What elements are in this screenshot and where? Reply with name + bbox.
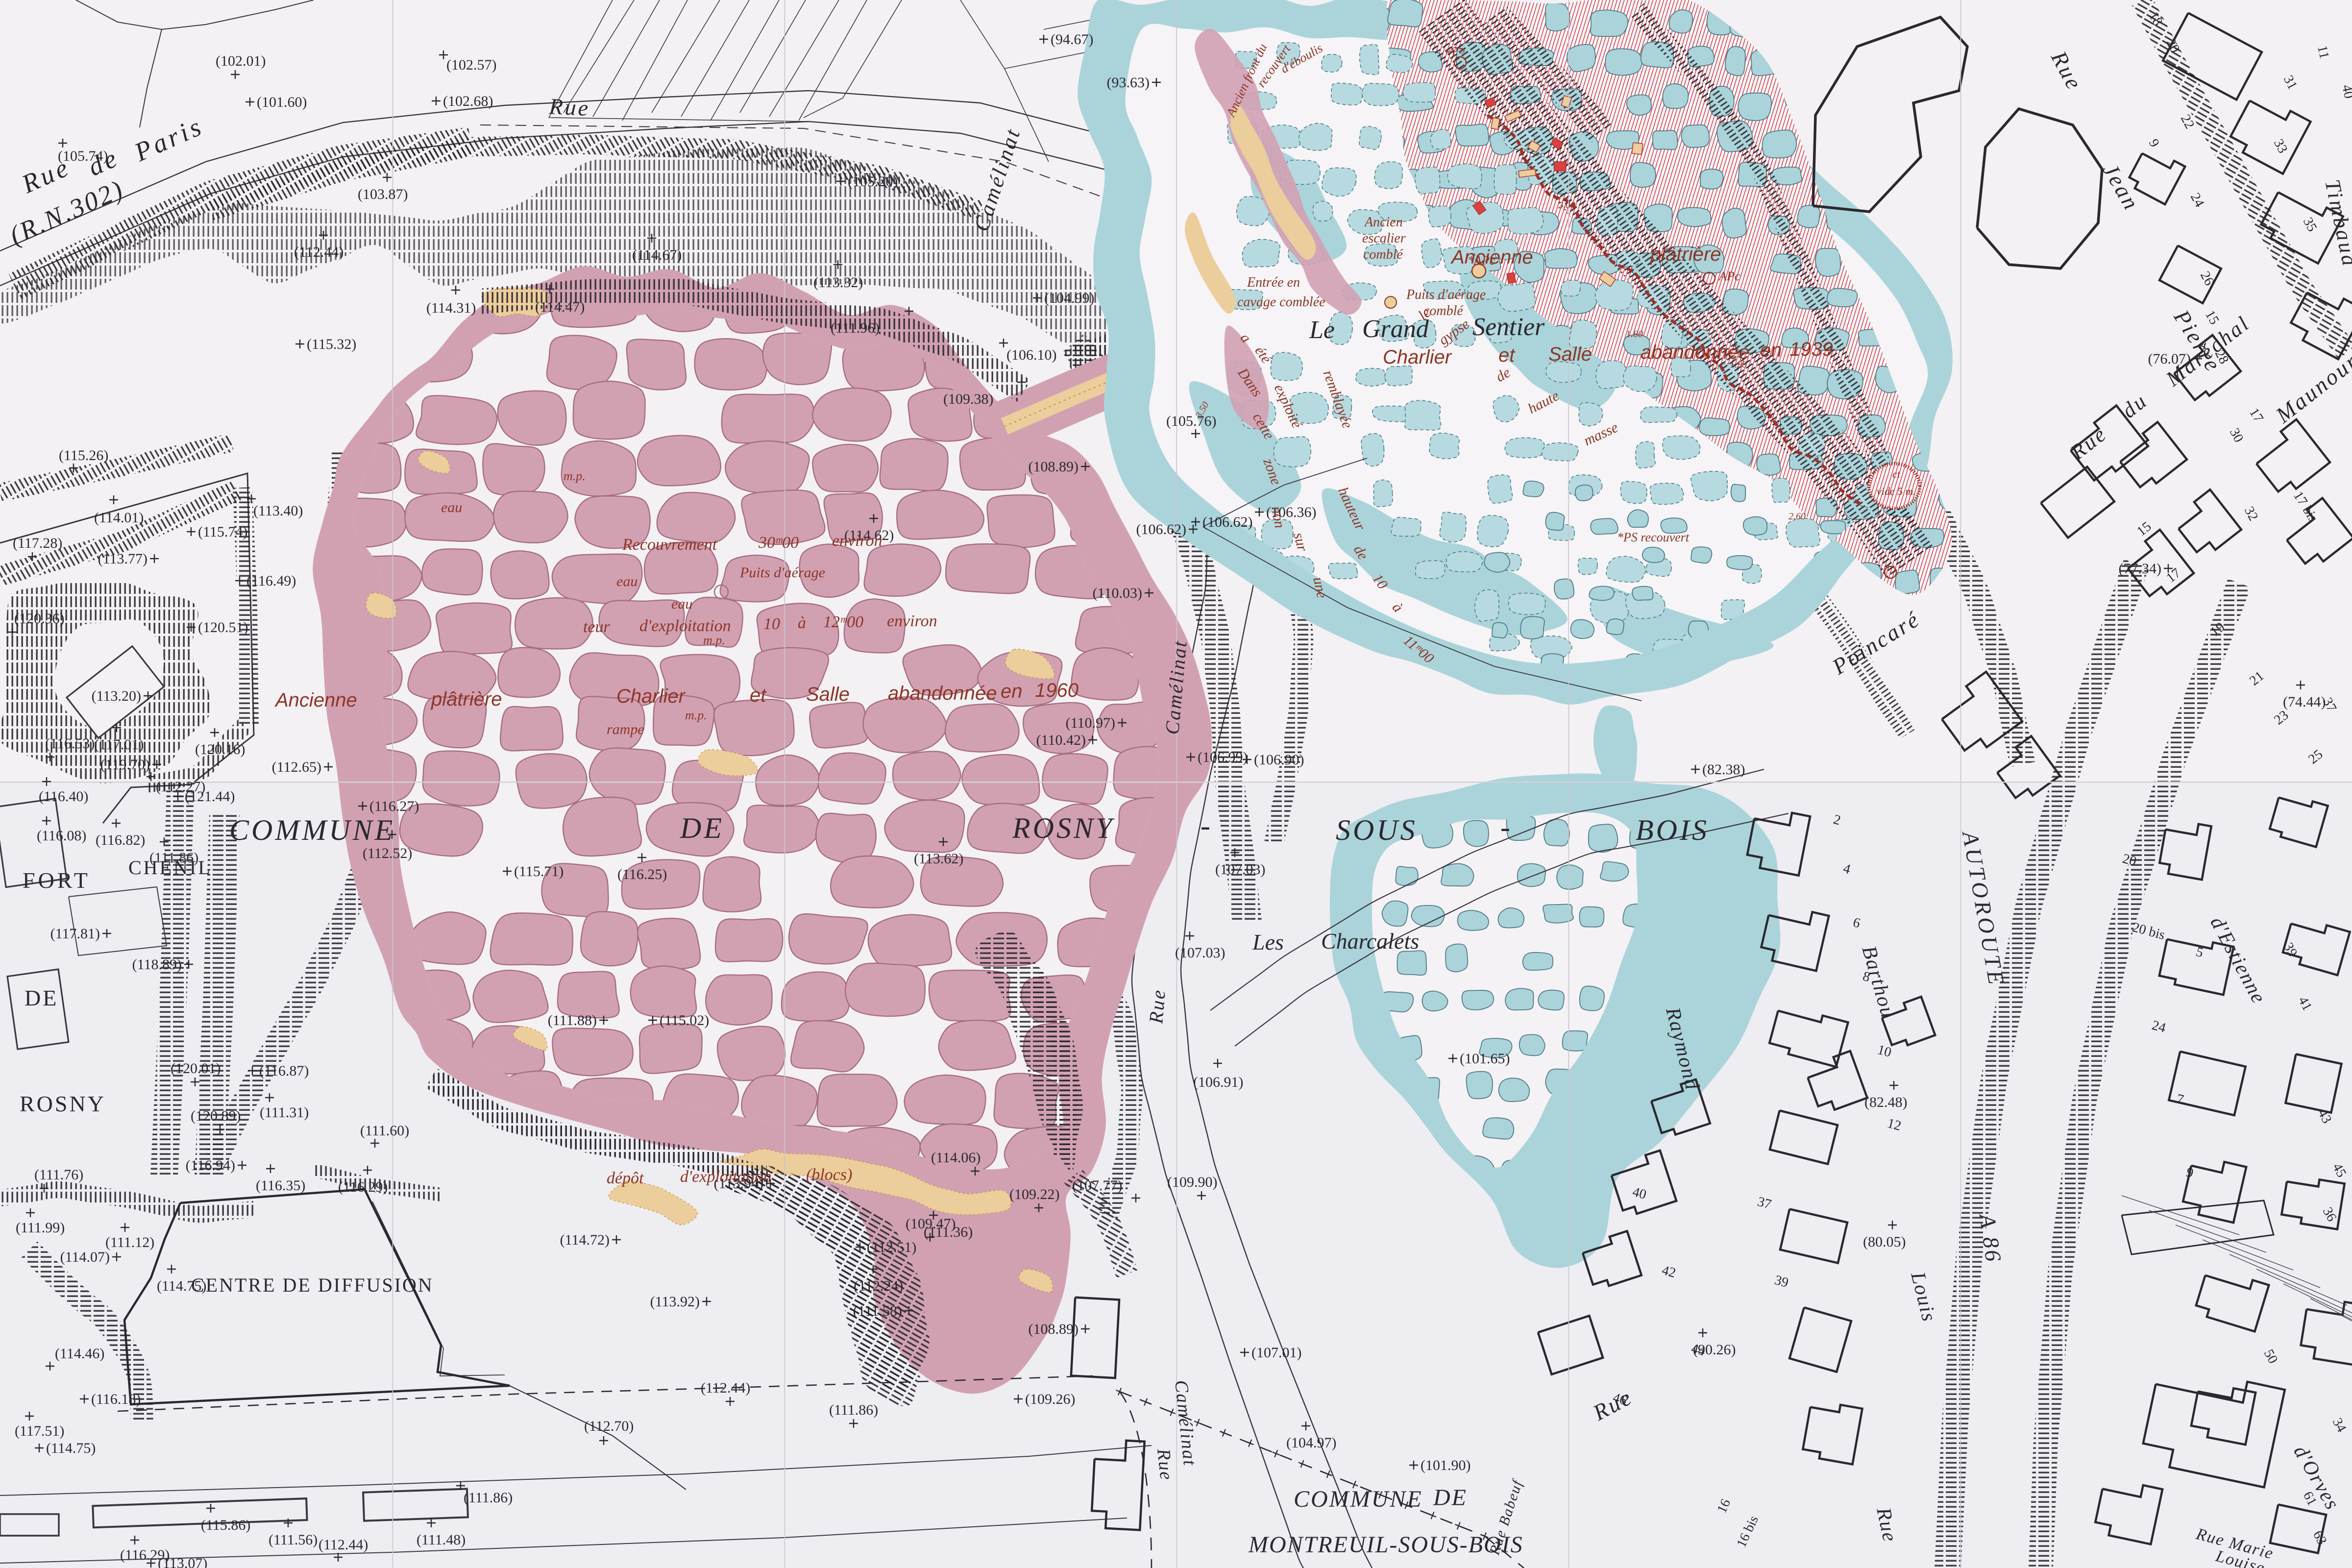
svg-text:(114.31): (114.31) [426, 300, 476, 316]
svg-text:(111.86): (111.86) [829, 1402, 878, 1418]
svg-text:(104.99): (104.99) [1044, 290, 1094, 306]
svg-text:(112.44): (112.44) [318, 1537, 368, 1553]
svg-text:(105.74): (105.74) [58, 148, 108, 164]
svg-text:(118.89): (118.89) [132, 956, 182, 973]
svg-text:(116.49): (116.49) [246, 573, 296, 589]
svg-text:(110.03): (110.03) [1093, 585, 1142, 601]
svg-text:APc: APc [1718, 269, 1740, 283]
svg-text:vide 5 m.: vide 5 m. [1877, 485, 1916, 497]
svg-text:Salle: Salle [806, 684, 850, 705]
svg-text:(120.51): (120.51) [198, 619, 248, 636]
svg-text:(104.97): (104.97) [1286, 1435, 1336, 1451]
svg-text:escalier: escalier [1362, 231, 1406, 246]
svg-text:(94.67): (94.67) [1051, 31, 1093, 48]
svg-text:(113.40): (113.40) [253, 503, 303, 519]
svg-text:(74.44): (74.44) [2283, 694, 2326, 710]
svg-text:(112.44): (112.44) [294, 244, 343, 260]
svg-text:(116.82): (116.82) [96, 832, 145, 848]
svg-text:(113.62): (113.62) [914, 851, 963, 867]
svg-text:(106.91): (106.91) [1193, 1074, 1243, 1090]
svg-text:(114.06): (114.06) [931, 1150, 980, 1166]
svg-text:(111.56): (111.56) [269, 1532, 318, 1548]
svg-text:(105.76): (105.76) [1166, 413, 1216, 429]
svg-text:(115.26): (115.26) [59, 447, 108, 464]
svg-text:*PS recouvert: *PS recouvert [1617, 530, 1690, 544]
svg-text:2.00: 2.00 [1558, 200, 1575, 211]
svg-text:eau: eau [671, 596, 692, 612]
svg-text:(82.38): (82.38) [1702, 761, 1745, 778]
svg-text:(112.44): (112.44) [701, 1380, 750, 1396]
svg-text:(109.38): (109.38) [943, 391, 993, 407]
svg-text:(116.94): (116.94) [186, 1157, 235, 1174]
svg-text:dépôt: dépôt [607, 1169, 644, 1187]
svg-text:(117.51): (117.51) [15, 1423, 64, 1439]
svg-text:(106.62): (106.62) [1136, 521, 1186, 538]
svg-text:(111.31): (111.31) [260, 1104, 309, 1121]
svg-text:2.60: 2.60 [1788, 511, 1806, 522]
svg-text:CHENIL: CHENIL [128, 857, 212, 879]
svg-text:(111.12): (111.12) [105, 1234, 154, 1250]
svg-text:(110.42): (110.42) [1036, 732, 1086, 748]
svg-text:eau: eau [441, 499, 462, 515]
svg-text:12ᵐ00: 12ᵐ00 [823, 613, 863, 631]
svg-text:(109.90): (109.90) [1167, 1174, 1217, 1190]
svg-text:(115.74): (115.74) [198, 524, 247, 540]
svg-text:Recouvrement: Recouvrement [622, 536, 718, 554]
svg-text:-: - [1500, 811, 1510, 843]
svg-text:(106.99): (106.99) [1198, 749, 1248, 765]
svg-text:(77.34): (77.34) [2119, 561, 2161, 577]
svg-text:(101.65): (101.65) [1460, 1051, 1510, 1067]
svg-text:(107.77): (107.77) [1072, 1177, 1122, 1194]
svg-text:en: en [1001, 681, 1023, 702]
svg-text:Ancienne: Ancienne [1450, 246, 1533, 268]
svg-text:(105.20): (105.20) [848, 173, 898, 190]
svg-text:(111.48): (111.48) [416, 1532, 465, 1548]
svg-text:(112.52): (112.52) [363, 845, 412, 861]
svg-text:(116.18): (116.18) [91, 1391, 141, 1407]
svg-text:-: - [1200, 809, 1210, 842]
svg-text:abandonnée: abandonnée [888, 683, 997, 704]
svg-text:(111.60): (111.60) [360, 1123, 409, 1139]
svg-text:(117.01): (117.01) [94, 736, 144, 753]
svg-text:(109.22): (109.22) [1009, 1186, 1059, 1202]
svg-text:Puits d'aérage: Puits d'aérage [1406, 287, 1486, 302]
svg-text:(106.90): (106.90) [1254, 752, 1304, 768]
svg-text:Ancienne: Ancienne [274, 689, 357, 711]
svg-text:MONTREUIL-SOUS-BOIS: MONTREUIL-SOUS-BOIS [1248, 1532, 1523, 1558]
svg-text:(120.16): (120.16) [195, 741, 245, 758]
svg-text:(114.72): (114.72) [560, 1232, 610, 1248]
svg-text:Sentier: Sentier [1472, 313, 1545, 341]
svg-text:1960: 1960 [1035, 680, 1078, 701]
svg-text:(115.71): (115.71) [514, 863, 563, 880]
svg-text:(107.03): (107.03) [1175, 945, 1225, 961]
svg-text:ct: ct [1892, 468, 1901, 480]
svg-text:(116.25): (116.25) [617, 866, 667, 882]
svg-text:Rue: Rue [548, 94, 590, 121]
svg-text:(116.08): (116.08) [37, 828, 86, 844]
svg-text:et: et [750, 685, 767, 706]
svg-text:(115.02): (115.02) [660, 1012, 709, 1029]
svg-text:(101.90): (101.90) [1421, 1457, 1470, 1473]
svg-text:(115.86): (115.86) [201, 1517, 250, 1533]
svg-text:(113.07): (113.07) [158, 1555, 207, 1568]
svg-text:(114.67): (114.67) [632, 247, 682, 263]
svg-text:(102.57): (102.57) [446, 57, 496, 73]
svg-text:abandonnée: abandonnée [1641, 342, 1749, 363]
svg-text:(111.96): (111.96) [831, 320, 880, 336]
svg-text:(111.88): (111.88) [548, 1012, 597, 1029]
svg-text:(120.89): (120.89) [191, 1108, 241, 1124]
svg-text:rampe: rampe [607, 721, 644, 737]
svg-text:(112.65): (112.65) [272, 759, 321, 775]
svg-text:(103.87): (103.87) [358, 186, 408, 202]
svg-text:(111.58): (111.58) [853, 1303, 902, 1319]
svg-text:(102.01): (102.01) [216, 53, 266, 69]
svg-text:(106.62): (106.62) [1202, 514, 1252, 530]
svg-text:(112.70): (112.70) [584, 1418, 634, 1434]
svg-text:plâtrière: plâtrière [1650, 244, 1721, 265]
svg-text:(93.63): (93.63) [1107, 74, 1150, 91]
svg-text:(113.32): (113.32) [813, 274, 863, 291]
svg-text:(113.77): (113.77) [98, 551, 147, 567]
svg-text:Charlier: Charlier [616, 686, 686, 707]
svg-text:BOIS: BOIS [1636, 814, 1709, 846]
svg-text:(111.99): (111.99) [16, 1220, 65, 1236]
svg-text:DE: DE [680, 812, 724, 844]
svg-text:ROSNY: ROSNY [1012, 812, 1115, 844]
svg-text:(116.35): (116.35) [256, 1177, 305, 1194]
svg-text:(110.97): (110.97) [1066, 715, 1115, 731]
svg-text:Charlier: Charlier [1383, 346, 1452, 368]
svg-text:10: 10 [763, 615, 780, 633]
svg-text:(101.60): (101.60) [257, 94, 307, 110]
svg-text:(blocs): (blocs) [806, 1166, 852, 1184]
svg-text:Les: Les [1252, 930, 1284, 955]
svg-text:(116.40): (116.40) [39, 788, 88, 805]
svg-text:(82.48): (82.48) [1864, 1094, 1907, 1110]
svg-text:(114.07): (114.07) [60, 1249, 110, 1265]
svg-text:plâtrière: plâtrière [431, 688, 502, 710]
svg-text:Entrée en: Entrée en [1247, 275, 1300, 290]
svg-text:(120.36): (120.36) [14, 611, 64, 627]
svg-text:ROSNY: ROSNY [20, 1091, 106, 1116]
svg-text:d'exploitation: d'exploitation [680, 1168, 772, 1186]
svg-text:Rue: Rue [1153, 1447, 1177, 1482]
svg-text:m.p.: m.p. [685, 708, 707, 722]
svg-text:(108.89): (108.89) [1029, 459, 1078, 475]
svg-text:FORT: FORT [23, 868, 91, 893]
svg-text:eau: eau [616, 573, 637, 589]
svg-text:(107.03): (107.03) [1215, 861, 1265, 878]
svg-text:Ancien: Ancien [1364, 215, 1403, 230]
svg-text:1939: 1939 [1789, 339, 1833, 360]
svg-text:Salle: Salle [1548, 343, 1592, 365]
svg-text:(116.87): (116.87) [259, 1063, 309, 1079]
svg-text:CENTRE DE DIFFUSION: CENTRE DE DIFFUSION [191, 1274, 434, 1296]
svg-text:teur: teur [583, 618, 611, 636]
svg-text:(107.01): (107.01) [1251, 1345, 1301, 1361]
svg-text:(114.47): (114.47) [535, 299, 585, 315]
svg-text:(115.32): (115.32) [307, 336, 356, 352]
svg-text:(114.01): (114.01) [94, 510, 144, 526]
svg-text:(116.53): (116.53) [45, 735, 95, 752]
svg-text:Charcalets: Charcalets [1321, 929, 1419, 954]
svg-text:Puits d'aérage: Puits d'aérage [739, 564, 825, 581]
svg-text:m.p.: m.p. [563, 469, 586, 483]
svg-text:(113.20): (113.20) [92, 688, 141, 704]
svg-text:(106.10): (106.10) [1006, 347, 1056, 363]
svg-text:(117.81): (117.81) [50, 926, 100, 942]
svg-text:(112.27): (112.27) [156, 779, 205, 795]
svg-text:COMMUNE: COMMUNE [229, 814, 395, 846]
svg-text:(116.27): (116.27) [369, 798, 419, 814]
svg-text:en: en [1760, 340, 1782, 361]
svg-text:(111.86): (111.86) [464, 1490, 513, 1506]
svg-text:(80.05): (80.05) [1863, 1234, 1906, 1250]
svg-text:(114.75): (114.75) [46, 1440, 96, 1456]
svg-text:COMMUNE: COMMUNE [1294, 1486, 1423, 1512]
svg-text:(112.51): (112.51) [867, 1239, 916, 1255]
svg-text:(102.68): (102.68) [443, 93, 493, 109]
svg-text:et: et [1498, 344, 1516, 366]
svg-text:DE: DE [24, 985, 58, 1010]
svg-text:Grand: Grand [1362, 315, 1429, 343]
svg-text:(112.24): (112.24) [854, 1278, 903, 1294]
svg-text:comblé: comblé [1363, 247, 1403, 262]
svg-text:(111.76): (111.76) [34, 1167, 83, 1183]
svg-text:à: à [798, 614, 806, 632]
svg-text:(120.01): (120.01) [171, 1060, 220, 1077]
svg-text:(109.26): (109.26) [1025, 1391, 1075, 1407]
svg-text:SOUS: SOUS [1336, 814, 1418, 846]
svg-text:(114.46): (114.46) [55, 1346, 104, 1362]
svg-text:30ᵐ00: 30ᵐ00 [758, 534, 799, 552]
svg-text:d'exploitation: d'exploitation [639, 617, 731, 635]
svg-text:(117.28): (117.28) [13, 535, 62, 551]
svg-text:(108.89): (108.89) [1029, 1321, 1078, 1337]
svg-text:(111.36): (111.36) [924, 1224, 973, 1240]
svg-text:Le: Le [1309, 316, 1335, 344]
svg-text:1.80: 1.80 [1626, 329, 1643, 340]
svg-text:environ: environ [887, 612, 937, 630]
svg-text:Rue: Rue [1145, 988, 1170, 1025]
svg-text:DE: DE [1433, 1485, 1468, 1511]
svg-text:(119.70): (119.70) [100, 757, 150, 773]
svg-text:(116.29): (116.29) [338, 1179, 388, 1195]
svg-text:m.p.: m.p. [703, 633, 725, 647]
svg-text:(113.92): (113.92) [650, 1294, 700, 1310]
svg-text:cavage comblée: cavage comblée [1237, 294, 1325, 310]
svg-text:environ: environ [832, 532, 882, 550]
